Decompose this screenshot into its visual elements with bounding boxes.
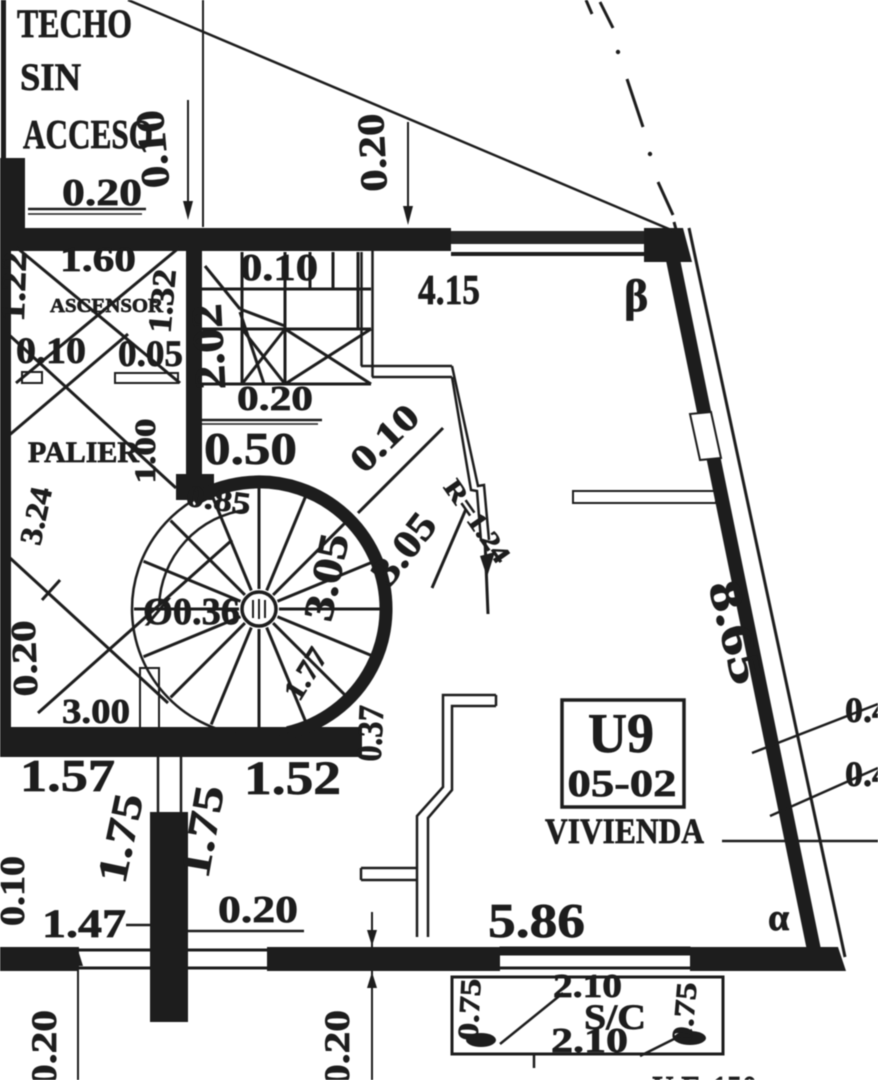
svg-text:0.10: 0.10 [240,247,318,289]
svg-text:05-02: 05-02 [568,763,677,805]
svg-text:VIVIENDA: VIVIENDA [545,811,704,851]
svg-text:0.75: 0.75 [666,981,703,1046]
svg-text:SIN: SIN [20,56,81,99]
svg-text:2.10: 2.10 [551,1021,628,1060]
svg-text:0.20: 0.20 [4,620,46,697]
svg-text:1.52: 1.52 [244,752,341,805]
svg-text:β: β [624,270,648,321]
svg-text:0.37: 0.37 [349,704,392,762]
svg-text:1.60: 1.60 [60,239,136,279]
svg-text:0.20: 0.20 [350,113,396,193]
svg-text:5.86: 5.86 [488,893,585,948]
svg-text:0.10: 0.10 [127,108,179,190]
svg-text:0.10: 0.10 [16,331,86,372]
svg-text:1.22: 1.22 [0,251,34,322]
svg-text:0.4: 0.4 [845,754,878,794]
svg-text:PALIER: PALIER [28,436,139,469]
svg-text:1.00: 1.00 [129,419,162,484]
svg-text:Ø0.36: Ø0.36 [143,591,240,633]
svg-text:3.00: 3.00 [62,692,130,731]
svg-text:0.10: 0.10 [0,856,32,926]
svg-text:U.F. 150: U.F. 150 [652,1069,757,1080]
svg-text:0.20: 0.20 [24,1010,64,1080]
svg-text:0.4: 0.4 [845,690,878,730]
svg-text:1.32: 1.32 [142,268,183,335]
svg-text:U9: U9 [588,703,654,765]
svg-text:0.20: 0.20 [62,172,142,214]
svg-text:1.47: 1.47 [42,901,126,946]
svg-text:TECHO: TECHO [17,1,132,46]
svg-text:0.75: 0.75 [452,978,487,1042]
svg-text:4.15: 4.15 [418,268,480,314]
svg-text:0.20: 0.20 [218,889,298,931]
svg-text:2.02: 2.02 [182,303,235,391]
svg-text:1.57: 1.57 [20,750,115,801]
svg-text:α: α [768,897,789,939]
svg-text:0.20: 0.20 [237,379,313,418]
svg-text:0.20: 0.20 [317,1010,357,1080]
svg-text:0.05: 0.05 [118,334,183,375]
svg-text:0.50: 0.50 [204,424,297,474]
